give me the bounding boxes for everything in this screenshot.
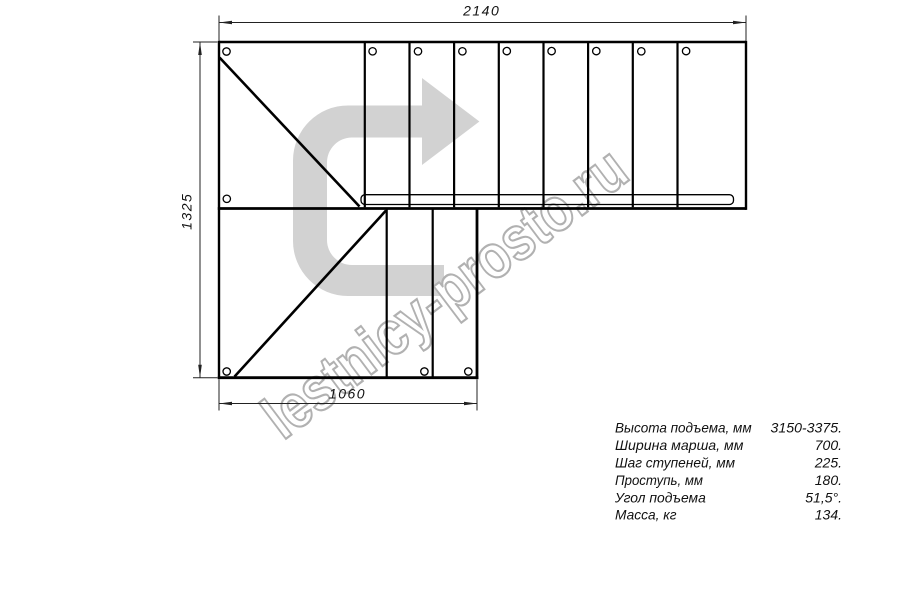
svg-text:1060: 1060 bbox=[329, 386, 366, 402]
svg-text:134.: 134. bbox=[815, 507, 842, 523]
svg-text:51,5°.: 51,5°. bbox=[805, 489, 842, 505]
svg-text:700.: 700. bbox=[815, 437, 842, 453]
svg-text:225.: 225. bbox=[814, 455, 842, 471]
svg-text:180.: 180. bbox=[815, 472, 842, 488]
svg-text:Высота подъема, мм: Высота подъема, мм bbox=[615, 420, 752, 436]
svg-text:2140: 2140 bbox=[462, 3, 500, 19]
svg-text:Проступь, мм: Проступь, мм bbox=[615, 472, 703, 488]
svg-text:Ширина марша, мм: Ширина марша, мм bbox=[615, 437, 744, 453]
svg-text:Масса, кг: Масса, кг bbox=[615, 507, 677, 523]
svg-text:1325: 1325 bbox=[179, 193, 195, 230]
svg-text:Угол подъема: Угол подъема bbox=[614, 489, 706, 505]
svg-text:3150-3375.: 3150-3375. bbox=[771, 420, 843, 436]
svg-text:Шаг ступеней, мм: Шаг ступеней, мм bbox=[615, 455, 735, 471]
